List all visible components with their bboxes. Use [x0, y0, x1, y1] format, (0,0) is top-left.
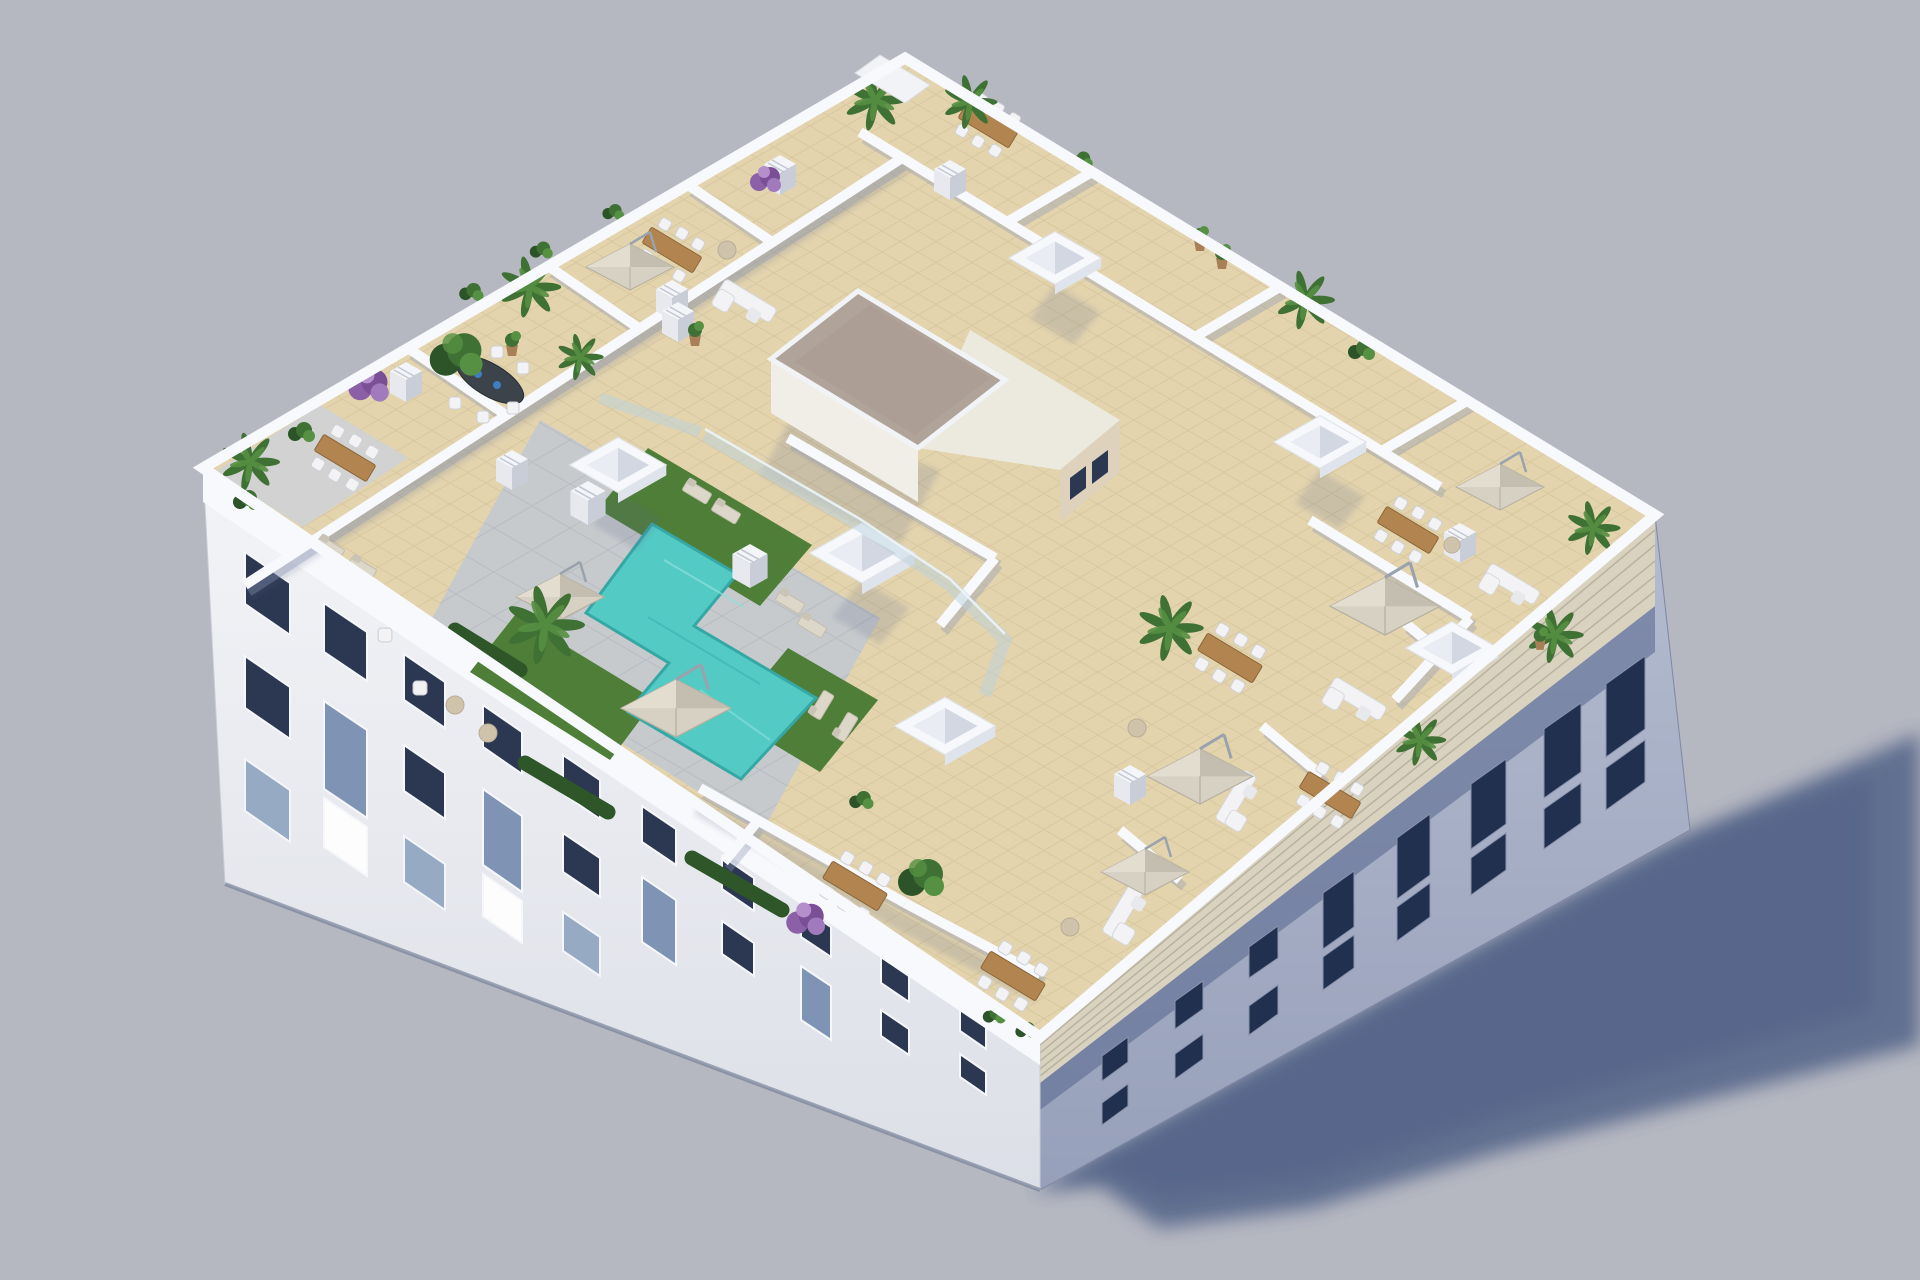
aerial-render: Aerial 3D render of an apartment buildin… [0, 0, 1920, 1280]
render-canvas: Photorealistic aerial 3D rendering of a … [0, 0, 1920, 1280]
